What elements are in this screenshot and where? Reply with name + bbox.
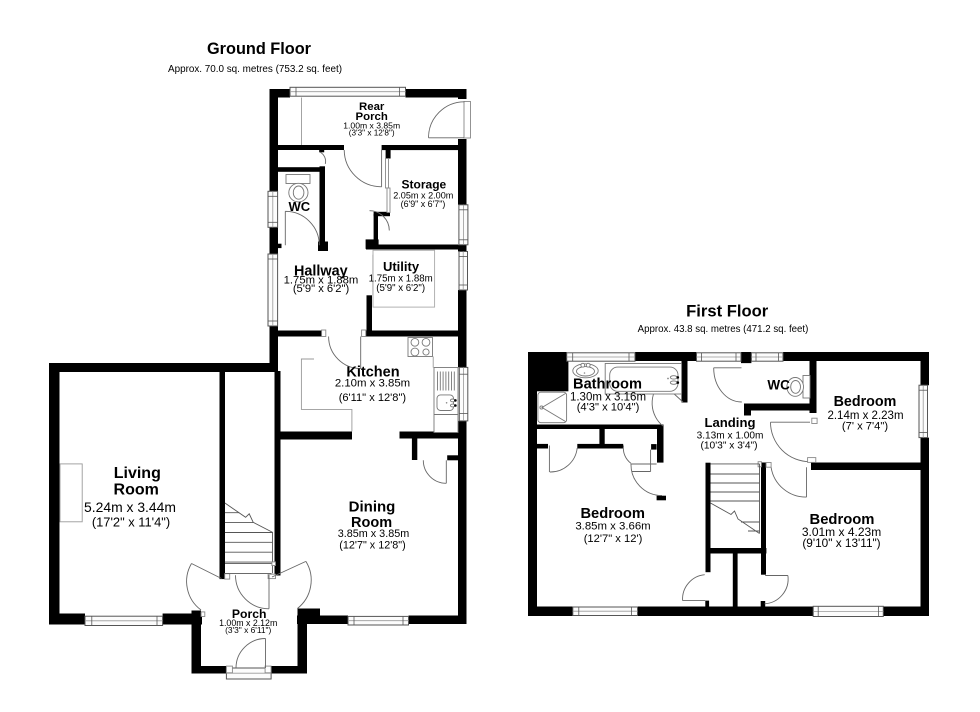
svg-text:2.10m x 3.85m: 2.10m x 3.85m — [335, 378, 410, 390]
svg-text:WC: WC — [288, 199, 310, 214]
svg-text:(12'7" x 12'8"): (12'7" x 12'8") — [339, 540, 405, 552]
svg-text:Approx. 43.8 sq. metres (471.2: Approx. 43.8 sq. metres (471.2 sq. feet) — [638, 324, 809, 335]
svg-text:Ground Floor: Ground Floor — [207, 40, 312, 58]
svg-text:(5'9" x 6'2"): (5'9" x 6'2") — [376, 283, 425, 294]
svg-text:(3'3" x 6'11"): (3'3" x 6'11") — [225, 625, 271, 635]
svg-text:Bedroom: Bedroom — [834, 394, 897, 410]
svg-text:Dining: Dining — [349, 499, 396, 516]
svg-text:3.85m x 3.85m: 3.85m x 3.85m — [338, 528, 409, 540]
svg-text:(10'3" x 3'4"): (10'3" x 3'4") — [701, 441, 758, 452]
svg-text:(6'11" x 12'8"): (6'11" x 12'8") — [339, 392, 406, 404]
svg-text:3.85m x 3.66m: 3.85m x 3.66m — [575, 521, 650, 533]
svg-text:Landing: Landing — [705, 415, 756, 430]
svg-text:(6'9" x 6'7"): (6'9" x 6'7") — [401, 199, 446, 209]
svg-text:(7' x 7'4"): (7' x 7'4") — [842, 421, 888, 433]
svg-text:(3'3" x 12'8"): (3'3" x 12'8") — [349, 129, 395, 138]
svg-text:(4'3" x 10'4"): (4'3" x 10'4") — [577, 402, 640, 414]
svg-text:(12'7" x 12'): (12'7" x 12') — [584, 533, 643, 545]
svg-text:5.24m x 3.44m: 5.24m x 3.44m — [84, 499, 176, 515]
svg-text:Living: Living — [114, 465, 161, 482]
svg-text:Approx. 70.0 sq. metres (753.2: Approx. 70.0 sq. metres (753.2 sq. feet) — [168, 64, 342, 75]
svg-text:(9'10" x 13'11"): (9'10" x 13'11") — [802, 536, 880, 550]
svg-text:(17'2" x 11'4"): (17'2" x 11'4") — [92, 514, 170, 529]
svg-text:Utility: Utility — [383, 259, 420, 274]
svg-text:(5'9" x 6'2"): (5'9" x 6'2") — [293, 283, 350, 295]
svg-text:First Floor: First Floor — [686, 302, 769, 321]
svg-text:WC: WC — [767, 377, 790, 392]
svg-text:Room: Room — [114, 482, 159, 499]
svg-text:Bathroom: Bathroom — [573, 377, 642, 393]
